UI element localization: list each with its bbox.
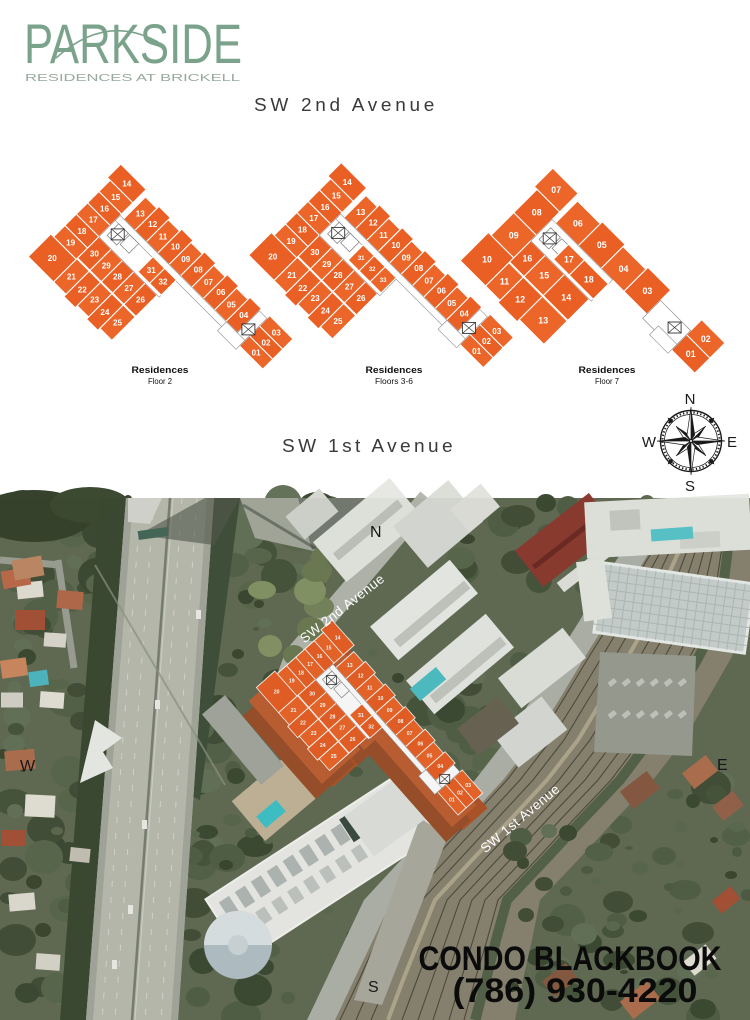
svg-text:02: 02 [261,338,271,347]
svg-text:11: 11 [159,232,168,241]
svg-text:N: N [685,391,696,408]
svg-text:29: 29 [102,261,112,270]
svg-text:31: 31 [358,256,365,262]
svg-text:06: 06 [437,287,447,296]
svg-text:29: 29 [322,260,332,269]
svg-text:E: E [717,757,728,774]
svg-text:05: 05 [447,299,457,308]
svg-text:01: 01 [472,347,482,356]
svg-text:01: 01 [686,349,696,359]
svg-text:27: 27 [124,284,134,293]
svg-text:13: 13 [538,315,548,325]
svg-text:20: 20 [268,252,278,261]
svg-text:N: N [370,524,382,541]
svg-text:12: 12 [148,220,158,229]
svg-text:02: 02 [701,334,711,344]
svg-text:17: 17 [89,216,99,225]
svg-text:07: 07 [551,185,561,195]
svg-text:08: 08 [194,265,204,274]
svg-text:09: 09 [181,255,191,264]
svg-text:E: E [727,434,737,451]
svg-text:S: S [685,478,695,495]
svg-text:13: 13 [356,208,366,217]
svg-text:10: 10 [171,243,181,252]
svg-text:(786) 930-4220: (786) 930-4220 [453,972,698,1010]
svg-text:16: 16 [100,204,110,213]
svg-text:10: 10 [482,254,492,264]
svg-text:Residences: Residences [579,365,636,376]
svg-text:16: 16 [320,203,330,212]
svg-text:30: 30 [90,249,100,258]
svg-text:SW 2nd Avenue: SW 2nd Avenue [254,95,438,115]
svg-text:17: 17 [564,255,574,265]
svg-text:22: 22 [78,285,88,294]
svg-text:23: 23 [90,296,100,305]
svg-text:21: 21 [287,271,297,280]
svg-text:09: 09 [509,230,519,240]
svg-text:32: 32 [369,267,376,273]
svg-text:25: 25 [333,317,343,326]
svg-text:14: 14 [343,178,353,187]
svg-text:Residences: Residences [132,365,189,376]
svg-text:19: 19 [66,238,76,247]
svg-text:13: 13 [136,210,146,219]
svg-text:27: 27 [345,282,355,291]
svg-text:03: 03 [643,286,653,296]
svg-text:11: 11 [500,277,509,287]
svg-text:19: 19 [287,237,297,246]
svg-text:05: 05 [227,301,237,310]
svg-text:12: 12 [515,295,525,305]
svg-text:14: 14 [122,179,132,188]
svg-text:32: 32 [158,278,168,287]
svg-text:Floor 2: Floor 2 [148,376,172,386]
svg-text:09: 09 [402,254,412,263]
svg-text:15: 15 [332,192,342,201]
svg-text:S: S [368,979,379,996]
svg-text:30: 30 [310,248,320,257]
svg-text:18: 18 [298,226,308,235]
svg-text:28: 28 [113,273,123,282]
svg-text:21: 21 [67,272,77,281]
svg-text:04: 04 [619,264,629,274]
svg-text:11: 11 [379,231,388,240]
svg-text:33: 33 [380,278,387,284]
svg-text:08: 08 [532,207,542,217]
svg-text:15: 15 [111,193,121,202]
svg-text:Floor 7: Floor 7 [595,376,619,386]
svg-text:03: 03 [492,327,502,336]
svg-text:RESIDENCES AT BRICKELL: RESIDENCES AT BRICKELL [25,72,240,84]
svg-text:05: 05 [597,240,607,250]
svg-text:24: 24 [100,308,110,317]
svg-text:06: 06 [216,288,226,297]
svg-text:04: 04 [239,311,249,320]
svg-text:26: 26 [356,294,366,303]
svg-text:01: 01 [252,348,262,357]
svg-text:17: 17 [309,214,319,223]
svg-text:07: 07 [424,276,434,285]
svg-text:14: 14 [561,292,571,302]
svg-text:15: 15 [539,271,549,281]
svg-text:31: 31 [147,266,157,275]
svg-text:25: 25 [113,319,123,328]
svg-text:W: W [20,758,36,775]
svg-text:Floors 3-6: Floors 3-6 [375,376,413,386]
svg-text:06: 06 [573,219,583,229]
svg-text:18: 18 [584,275,594,285]
svg-text:10: 10 [391,241,401,250]
svg-text:07: 07 [204,278,214,287]
svg-text:16: 16 [523,254,533,264]
svg-text:04: 04 [460,309,470,318]
svg-text:08: 08 [414,264,424,273]
svg-text:24: 24 [321,306,331,315]
svg-text:PARKSIDE: PARKSIDE [24,12,242,75]
svg-text:SW 1st Avenue: SW 1st Avenue [282,436,456,456]
svg-text:18: 18 [77,227,87,236]
svg-text:02: 02 [482,337,492,346]
svg-text:W: W [642,434,657,451]
svg-text:26: 26 [136,296,146,305]
svg-text:22: 22 [298,284,308,293]
svg-text:20: 20 [48,254,58,263]
svg-text:23: 23 [311,294,321,303]
svg-text:03: 03 [272,328,282,337]
svg-text:Residences: Residences [366,365,423,376]
svg-text:12: 12 [369,218,379,227]
svg-text:28: 28 [333,271,343,280]
